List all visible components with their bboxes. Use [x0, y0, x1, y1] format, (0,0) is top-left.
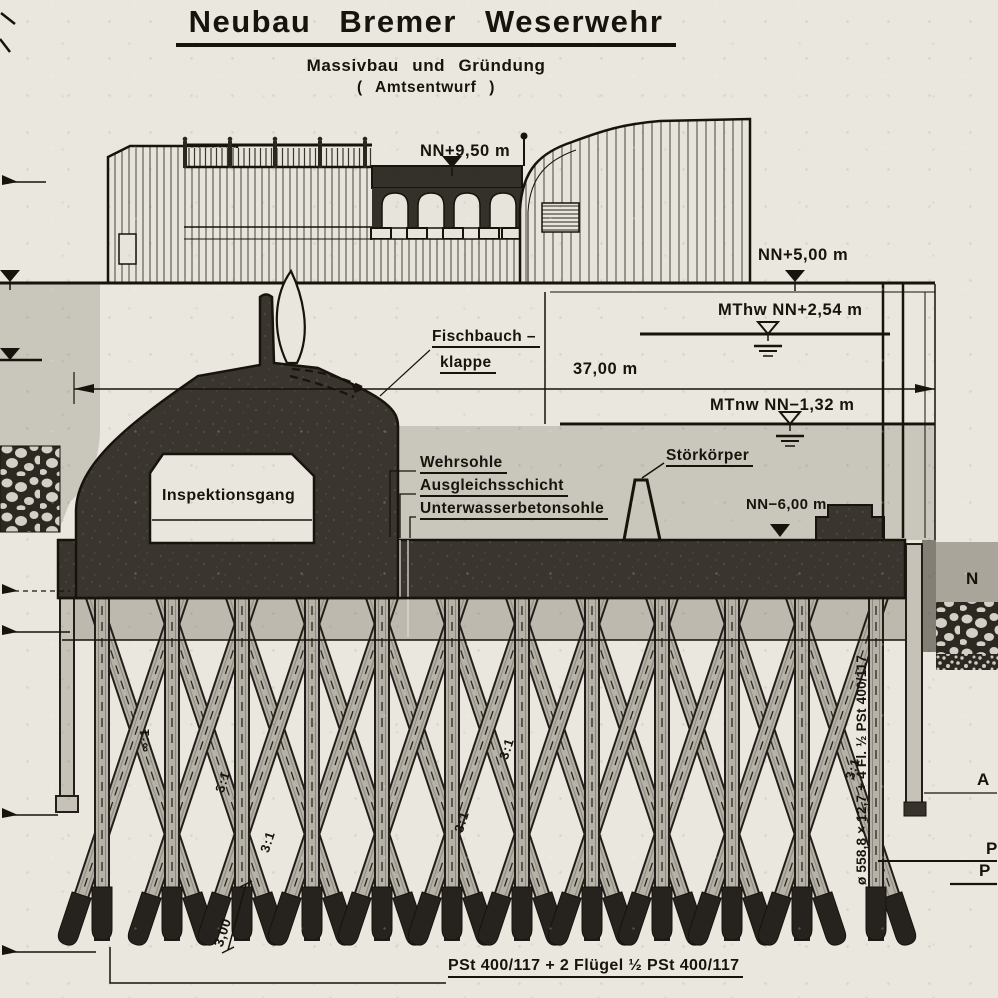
edge-letter-p2: P — [979, 862, 991, 880]
weir-sill-label: Wehrsohle — [420, 455, 507, 474]
gallery-label: Inspektionsgang — [162, 488, 295, 505]
level-label-top: NN+5,00 m — [758, 247, 848, 264]
flap-label-line1: Fischbauch – — [432, 329, 540, 348]
flap-label-line2: klappe — [440, 355, 496, 374]
drawing-subtitle: Massivbau und Gründung — [176, 57, 676, 75]
downstream-riprap — [936, 602, 998, 654]
level-label-deck: NN+9,50 m — [420, 143, 510, 160]
underwater-concrete-label: Unterwasserbetonsohle — [420, 501, 608, 520]
dimension-weir-width: 37,00 m — [573, 361, 638, 378]
baffle-label: Störkörper — [666, 448, 753, 467]
drawing-title: Neubau Bremer Weserwehr — [176, 6, 676, 47]
upstream-riprap — [0, 446, 60, 532]
drawing-subtitle-2: ( Amtsentwurf ) — [176, 80, 676, 96]
drawing-sheet: Neubau Bremer Weserwehr Massivbau und Gr… — [0, 0, 998, 998]
level-label-mthw: MThw NN+2,54 m — [718, 302, 863, 319]
downstream-gravel — [936, 654, 998, 670]
sheet-pile-note: PSt 400/117 + 2 Flügel ½ PSt 400/117 — [448, 958, 743, 978]
leveling-layer-label: Ausgleichsschicht — [420, 478, 568, 497]
column-bases — [371, 228, 522, 239]
edge-letter-p1: P — [986, 840, 998, 858]
level-label-mtnw: MTnw NN−1,32 m — [710, 397, 855, 414]
edge-letter-a: A — [977, 771, 990, 789]
level-label-sill: NN−6,00 m — [746, 497, 827, 513]
slope-label-0: ∞:1 — [138, 728, 152, 752]
edge-letter-n: N — [966, 570, 979, 588]
